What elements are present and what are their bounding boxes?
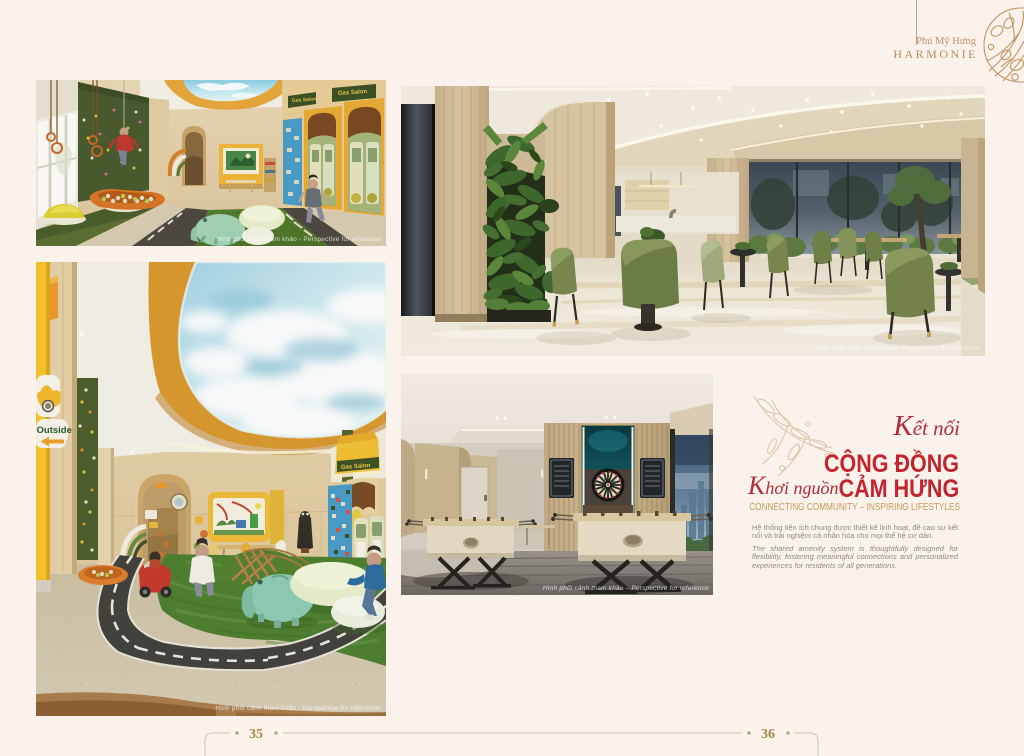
svg-text:35: 35 <box>249 727 263 742</box>
svg-text:36: 36 <box>761 727 775 742</box>
